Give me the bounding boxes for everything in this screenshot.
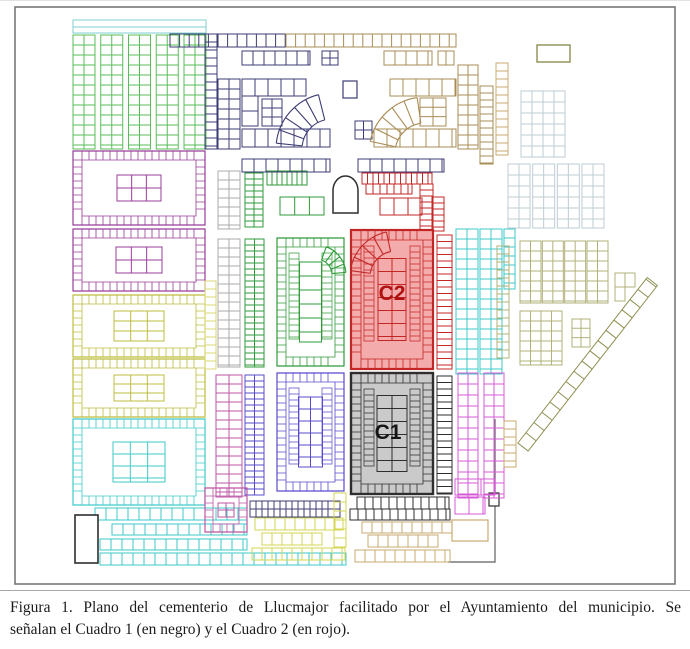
figure-caption: Figura 1. Plano del cementerio de Llucma… (0, 591, 690, 640)
cemetery-map-svg: C2C1 (0, 1, 690, 590)
c2-label: C2 (379, 282, 406, 305)
figure-1: C2C1 Figura 1. Plano del cementerio de L… (0, 0, 690, 640)
cemetery-map: C2C1 (0, 0, 690, 591)
figure-page: C2C1 Figura 1. Plano del cementerio de L… (0, 0, 690, 649)
caption-line-1: Figura 1. Plano del cementerio de Llucma… (10, 597, 681, 619)
caption-line-2: señalan el Cuadro 1 (en negro) y el Cuad… (10, 619, 681, 641)
c1-label: C1 (375, 421, 402, 444)
